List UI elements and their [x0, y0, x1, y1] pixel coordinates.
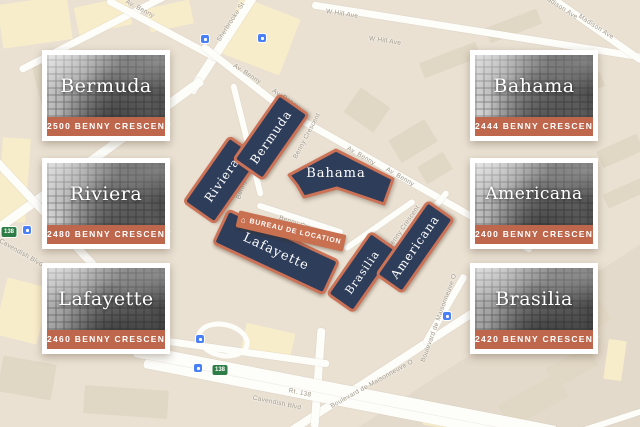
building-address: 2420 BENNY CRESCENT: [475, 330, 593, 349]
street-label: Cavendish Blvd: [0, 238, 44, 269]
transit-icon[interactable]: [201, 35, 209, 43]
building-name: Bahama: [475, 55, 593, 117]
street-label: Madison Ave: [577, 13, 615, 41]
building-footprint: [83, 385, 169, 419]
transit-icon[interactable]: [23, 226, 31, 234]
transit-icon[interactable]: [196, 335, 204, 343]
building-footprint: [344, 87, 391, 132]
street-label: Boulevard de Maisonneuve O: [420, 273, 459, 363]
transit-icon[interactable]: [258, 34, 266, 42]
building-card-americana[interactable]: Americana 2400 BENNY CRESCENT: [470, 158, 598, 249]
building-card-bermuda[interactable]: Bermuda 2500 BENNY CRESCENT: [42, 50, 170, 141]
building-footprint: [603, 179, 640, 209]
building-address: 2460 BENNY CRESCENT: [47, 330, 165, 349]
building-name: Americana: [475, 163, 593, 225]
building-footprint: [417, 152, 453, 185]
building-address: 2480 BENNY CRESCENT: [47, 225, 165, 244]
site-map-page: Av. Benny Sherbrooke St Av. Benny Av. Be…: [0, 0, 640, 427]
building-photo: Bahama: [475, 55, 593, 117]
map-building-label: Americana: [388, 212, 442, 281]
route-shield-138: 138: [2, 227, 17, 237]
building-name: Lafayette: [47, 268, 165, 330]
building-photo: Lafayette: [47, 268, 165, 330]
building-photo: Riviera: [47, 163, 165, 225]
building-card-bahama[interactable]: Bahama 2444 BENNY CRESCENT: [470, 50, 598, 141]
building-footprint: [596, 134, 640, 168]
building-card-riviera[interactable]: Riviera 2480 BENNY CRESCENT: [42, 158, 170, 249]
transit-icon[interactable]: [443, 312, 451, 320]
building-address: 2500 BENNY CRESCENT: [47, 117, 165, 136]
building-footprint: [0, 356, 57, 401]
building-photo: Americana: [475, 163, 593, 225]
building-card-brasilia[interactable]: Brasilia 2420 BENNY CRESCENT: [470, 263, 598, 354]
building-address: 2400 BENNY CRESCENT: [475, 225, 593, 244]
map-building-bahama[interactable]: Bahama: [286, 146, 398, 208]
map-building-label: Bahama: [306, 166, 366, 181]
route-shield-138: 138: [213, 365, 228, 375]
building-name: Bermuda: [47, 55, 165, 117]
building-card-lafayette[interactable]: Lafayette 2460 BENNY CRESCENT: [42, 263, 170, 354]
building-photo: Bermuda: [47, 55, 165, 117]
map-block: [0, 0, 73, 49]
street-label: W Hill Ave: [368, 35, 401, 47]
home-icon: ⌂: [240, 216, 247, 225]
transit-icon[interactable]: [194, 364, 202, 372]
building-address: 2444 BENNY CRESCENT: [475, 117, 593, 136]
building-name: Brasilia: [475, 268, 593, 330]
street-label: Madison Ave: [541, 0, 579, 21]
building-photo: Brasilia: [475, 268, 593, 330]
building-name: Riviera: [47, 163, 165, 225]
